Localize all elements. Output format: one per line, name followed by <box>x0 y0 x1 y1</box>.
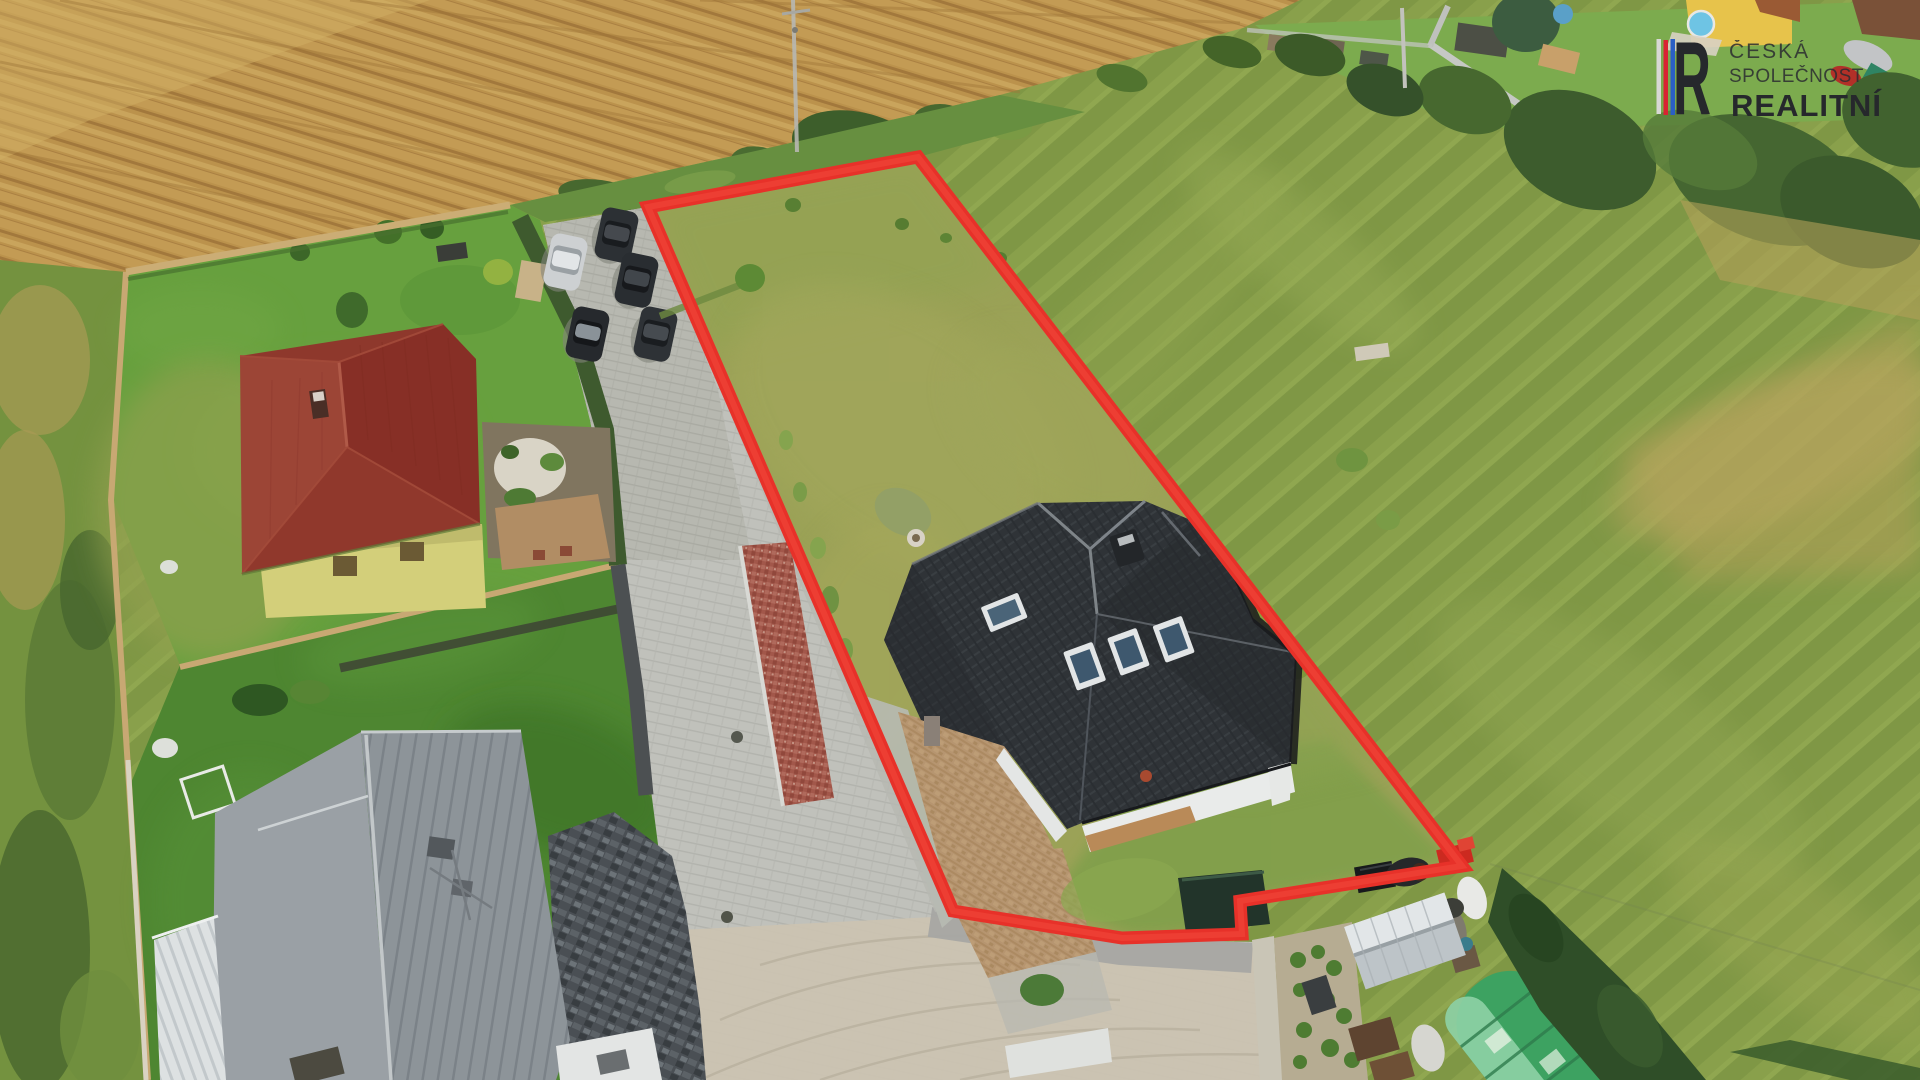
svg-text:R: R <box>1673 21 1711 137</box>
svg-text:SPOLEČNOST: SPOLEČNOST <box>1729 65 1864 87</box>
svg-text:REALITNÍ: REALITNÍ <box>1731 88 1882 123</box>
svg-text:ČESKÁ: ČESKÁ <box>1729 40 1810 63</box>
